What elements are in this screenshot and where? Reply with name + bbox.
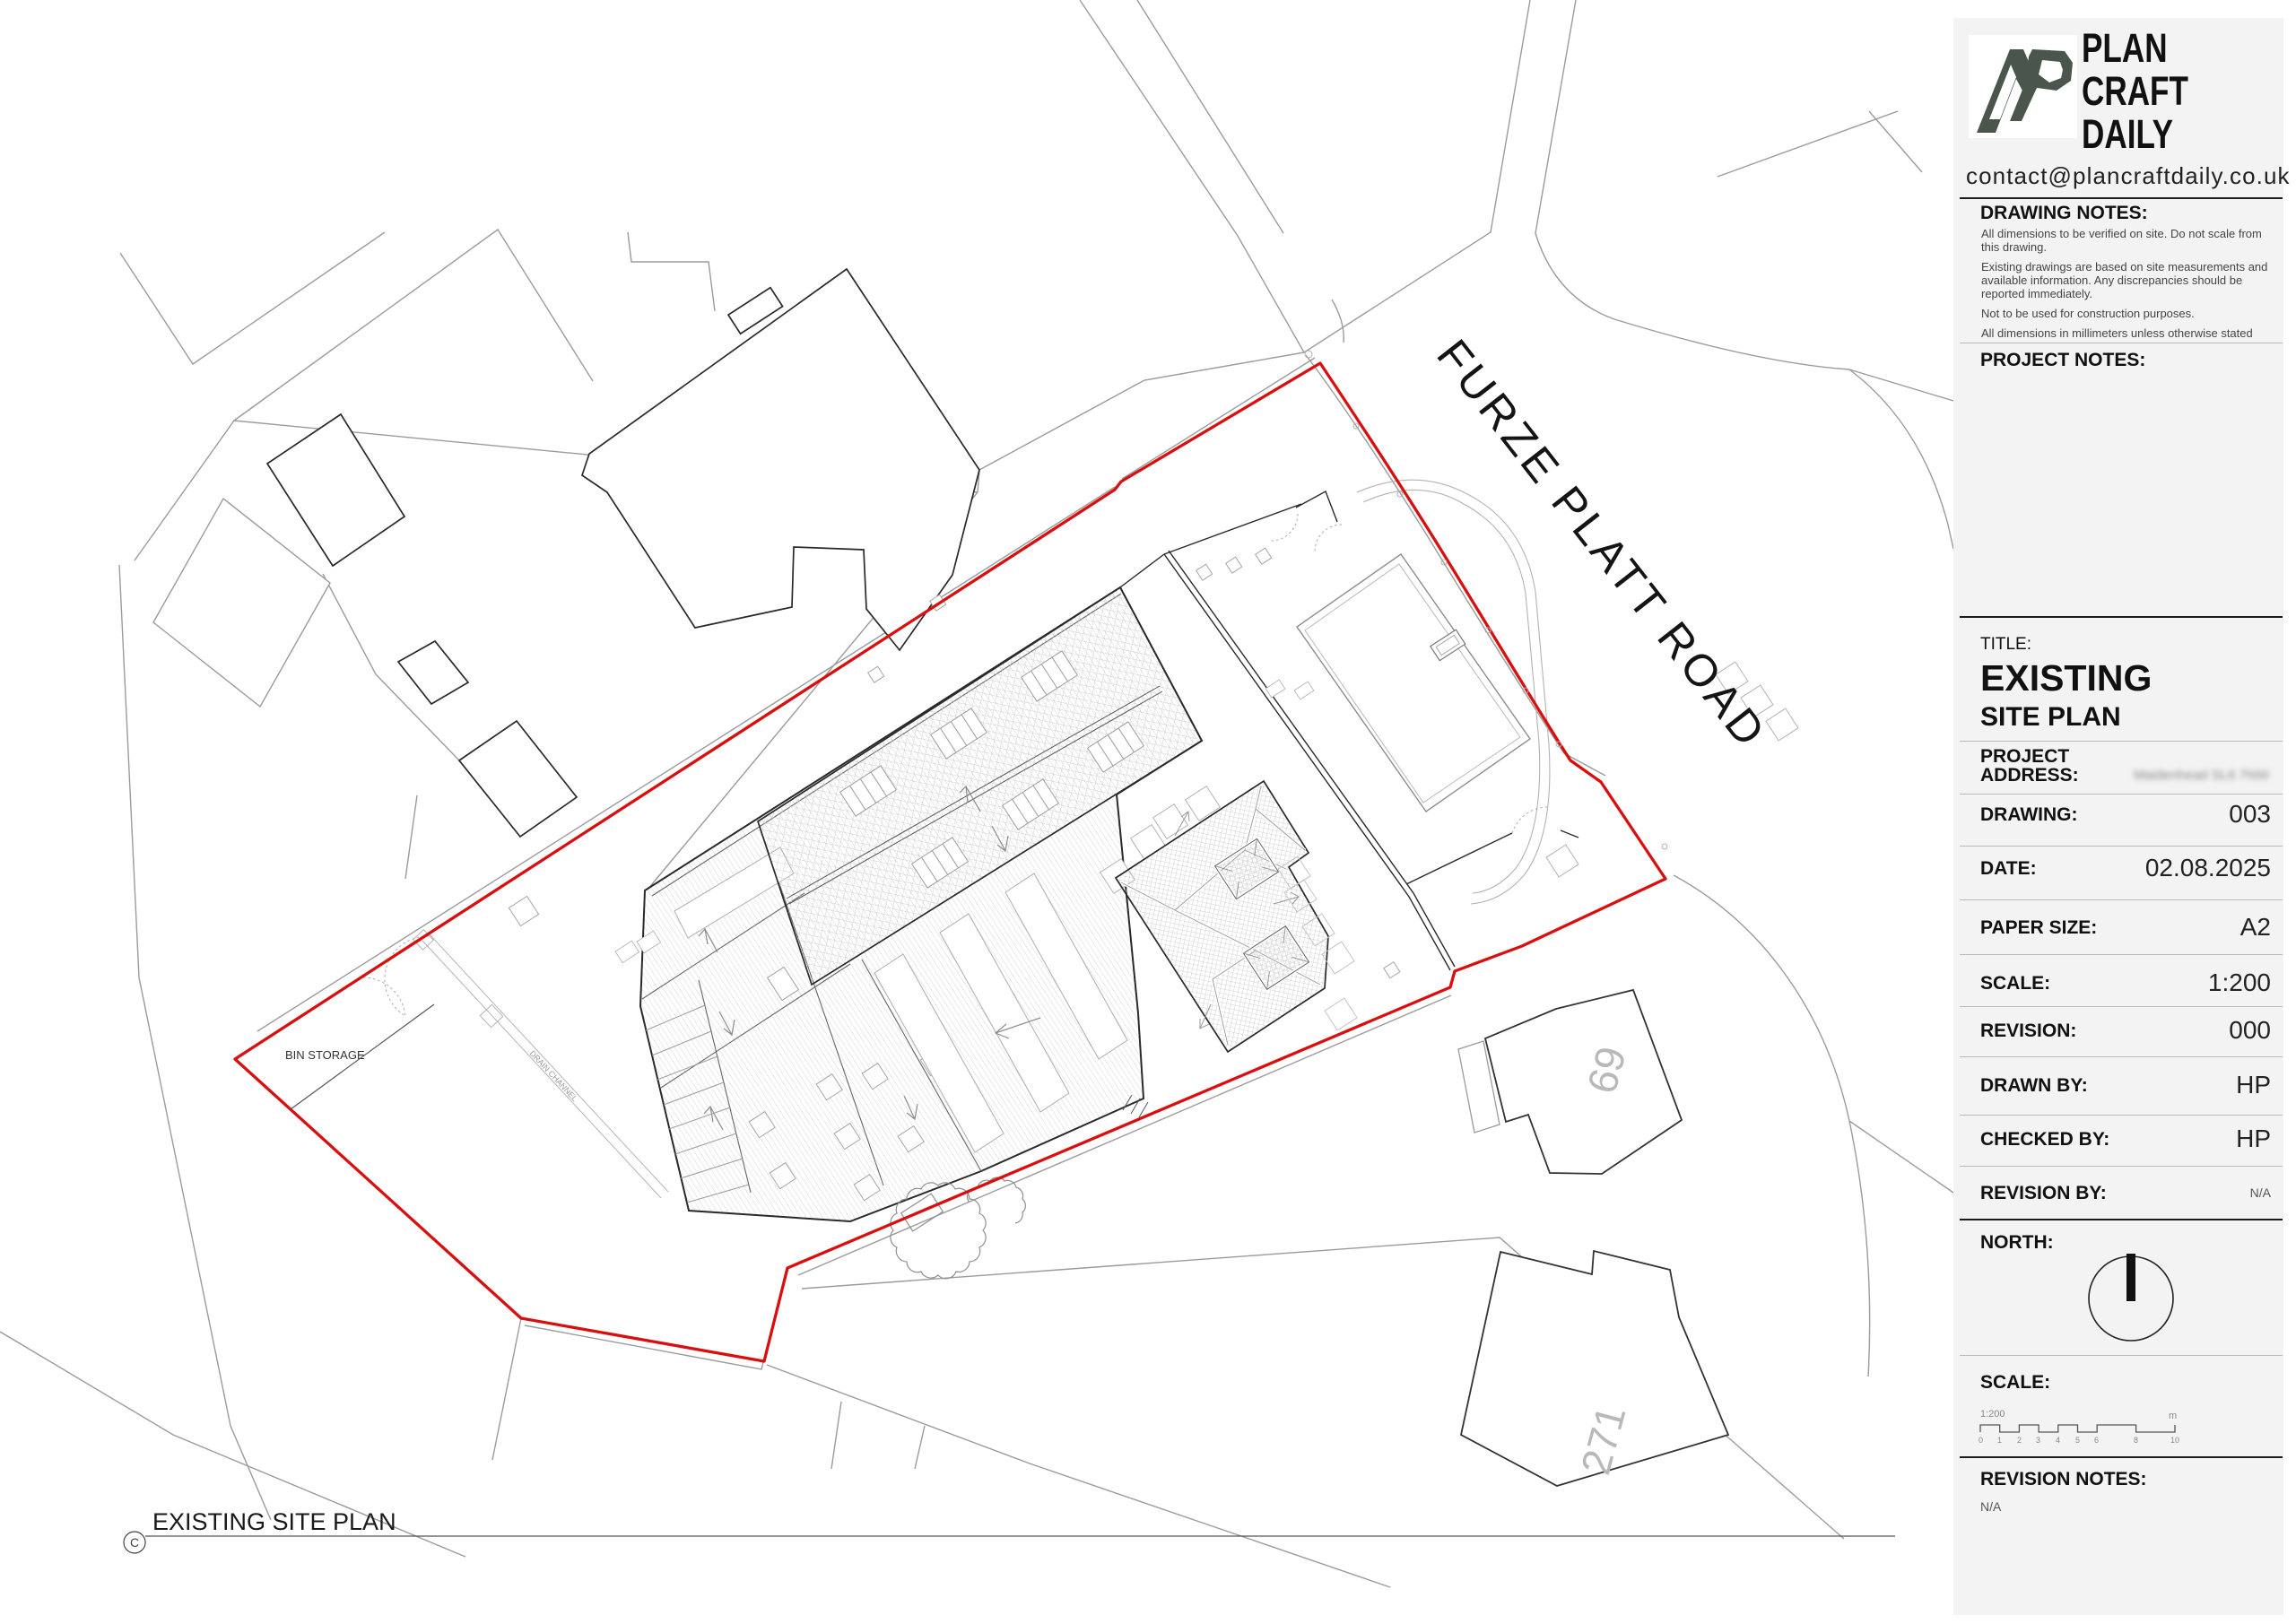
svg-text:2: 2 [2017,1436,2022,1445]
svg-text:1: 1 [1997,1436,2002,1445]
svg-text:m: m [2169,1411,2177,1421]
svg-text:C: C [130,1535,139,1550]
svg-text:6: 6 [2094,1436,2099,1445]
svg-text:EXISTING SITE PLAN: EXISTING SITE PLAN [152,1508,396,1535]
svg-text:5: 5 [2075,1436,2080,1445]
svg-text:3: 3 [2036,1436,2040,1445]
svg-text:4: 4 [2056,1436,2060,1445]
svg-text:10: 10 [2170,1436,2179,1445]
svg-text:1:200: 1:200 [1980,1409,2005,1420]
svg-text:8: 8 [2134,1436,2138,1445]
svg-text:0: 0 [1979,1436,1983,1445]
svg-text:DRAIN CHANNEL: DRAIN CHANNEL [528,1049,579,1104]
svg-text:BIN STORAGE: BIN STORAGE [285,1048,365,1062]
